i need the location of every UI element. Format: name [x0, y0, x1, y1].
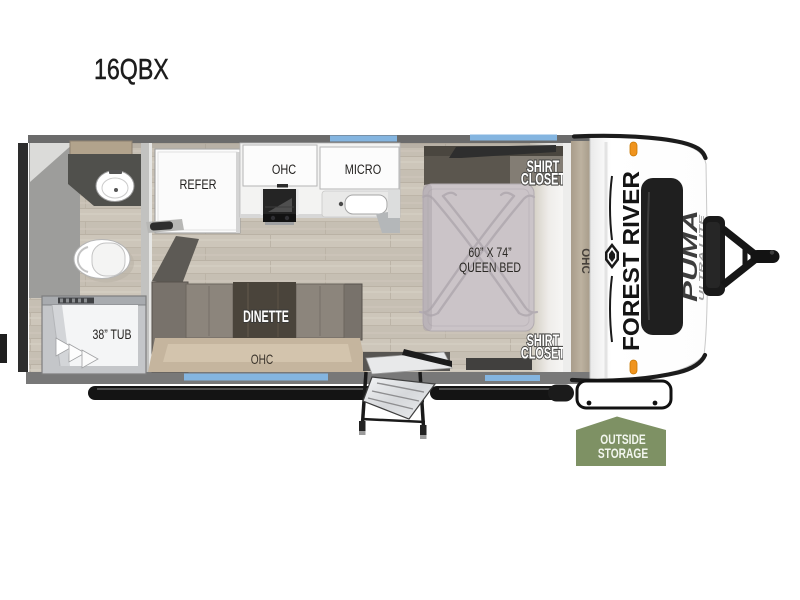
svg-text:OHC: OHC — [272, 162, 296, 178]
svg-text:DINETTE: DINETTE — [243, 307, 289, 326]
svg-text:REFER: REFER — [180, 177, 217, 193]
svg-text:STORAGE: STORAGE — [598, 445, 648, 461]
svg-text:38” TUB: 38” TUB — [93, 327, 132, 343]
svg-text:FOREST RIVER: FOREST RIVER — [618, 171, 644, 351]
svg-text:CLOSET: CLOSET — [521, 343, 565, 362]
svg-text:MICRO: MICRO — [345, 162, 382, 178]
svg-text:16QBX: 16QBX — [94, 52, 169, 85]
svg-text:CLOSET: CLOSET — [521, 169, 565, 188]
svg-text:OHC: OHC — [579, 248, 591, 274]
svg-text:60” X 74”: 60” X 74” — [468, 245, 511, 261]
svg-text:OHC: OHC — [251, 352, 274, 368]
svg-text:QUEEN BED: QUEEN BED — [459, 260, 521, 276]
